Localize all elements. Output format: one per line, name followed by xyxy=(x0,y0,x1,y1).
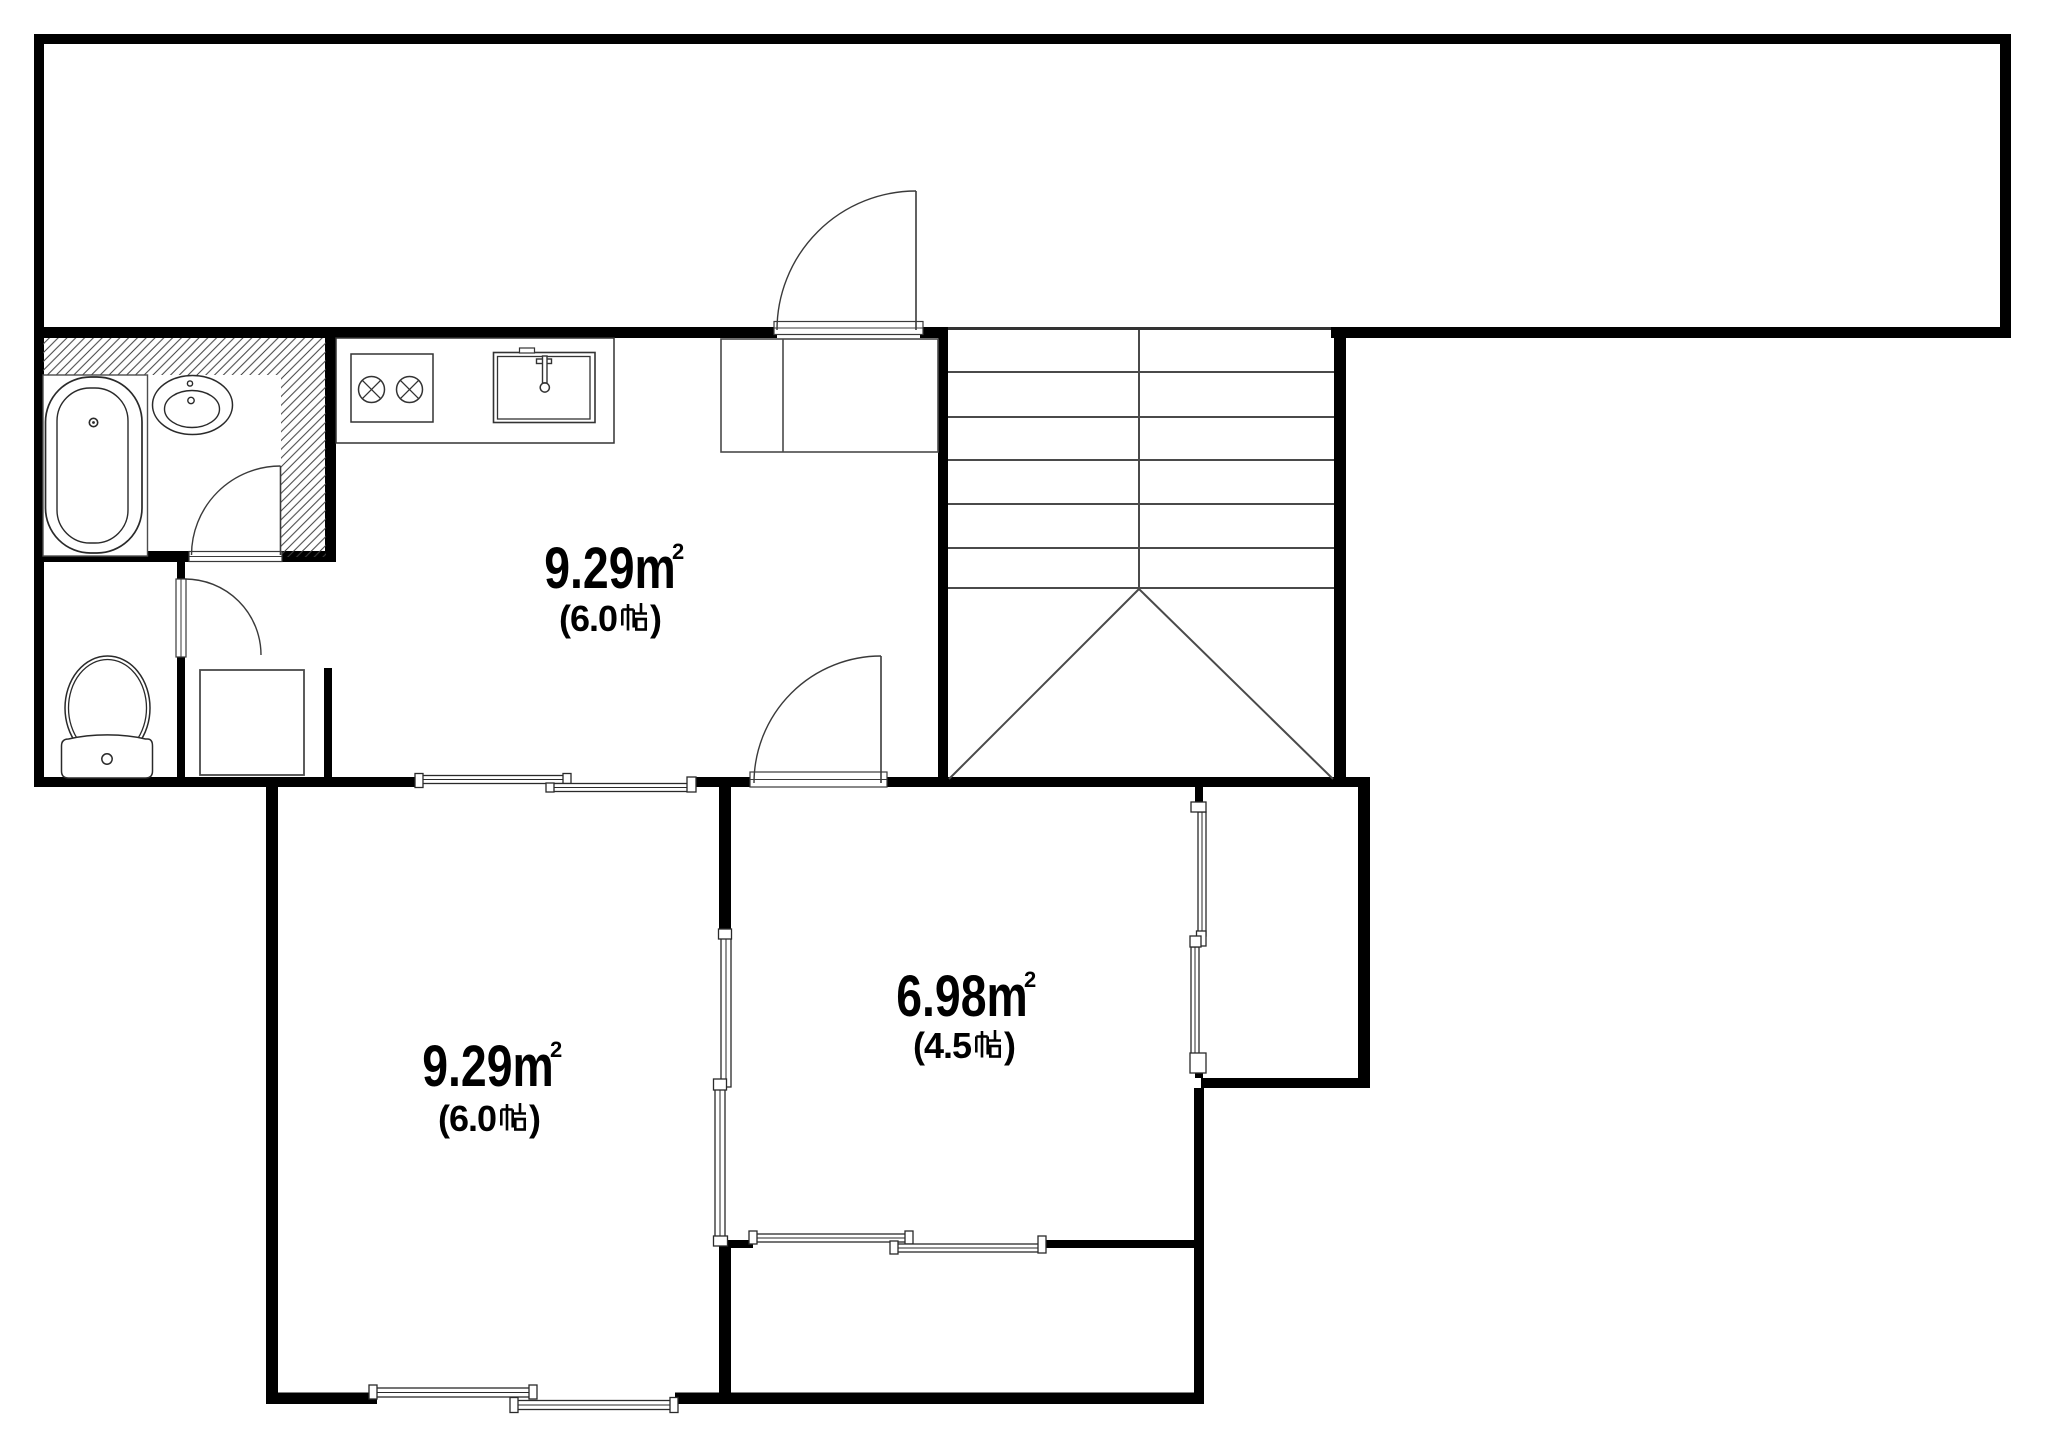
svg-text:(6.0: (6.0 xyxy=(438,1098,496,1139)
svg-text:): ) xyxy=(1004,1025,1016,1066)
svg-text:6.98m: 6.98m xyxy=(896,964,1028,1029)
svg-text:2: 2 xyxy=(1024,967,1036,992)
svg-text:(6.0: (6.0 xyxy=(559,598,617,639)
svg-text:2: 2 xyxy=(672,539,684,564)
svg-text:2: 2 xyxy=(550,1037,562,1062)
svg-text:(4.5: (4.5 xyxy=(913,1025,972,1066)
svg-text:9.29m: 9.29m xyxy=(422,1034,554,1099)
svg-text:9.29m: 9.29m xyxy=(544,536,676,601)
svg-text:): ) xyxy=(529,1098,541,1139)
svg-text:): ) xyxy=(650,598,662,639)
